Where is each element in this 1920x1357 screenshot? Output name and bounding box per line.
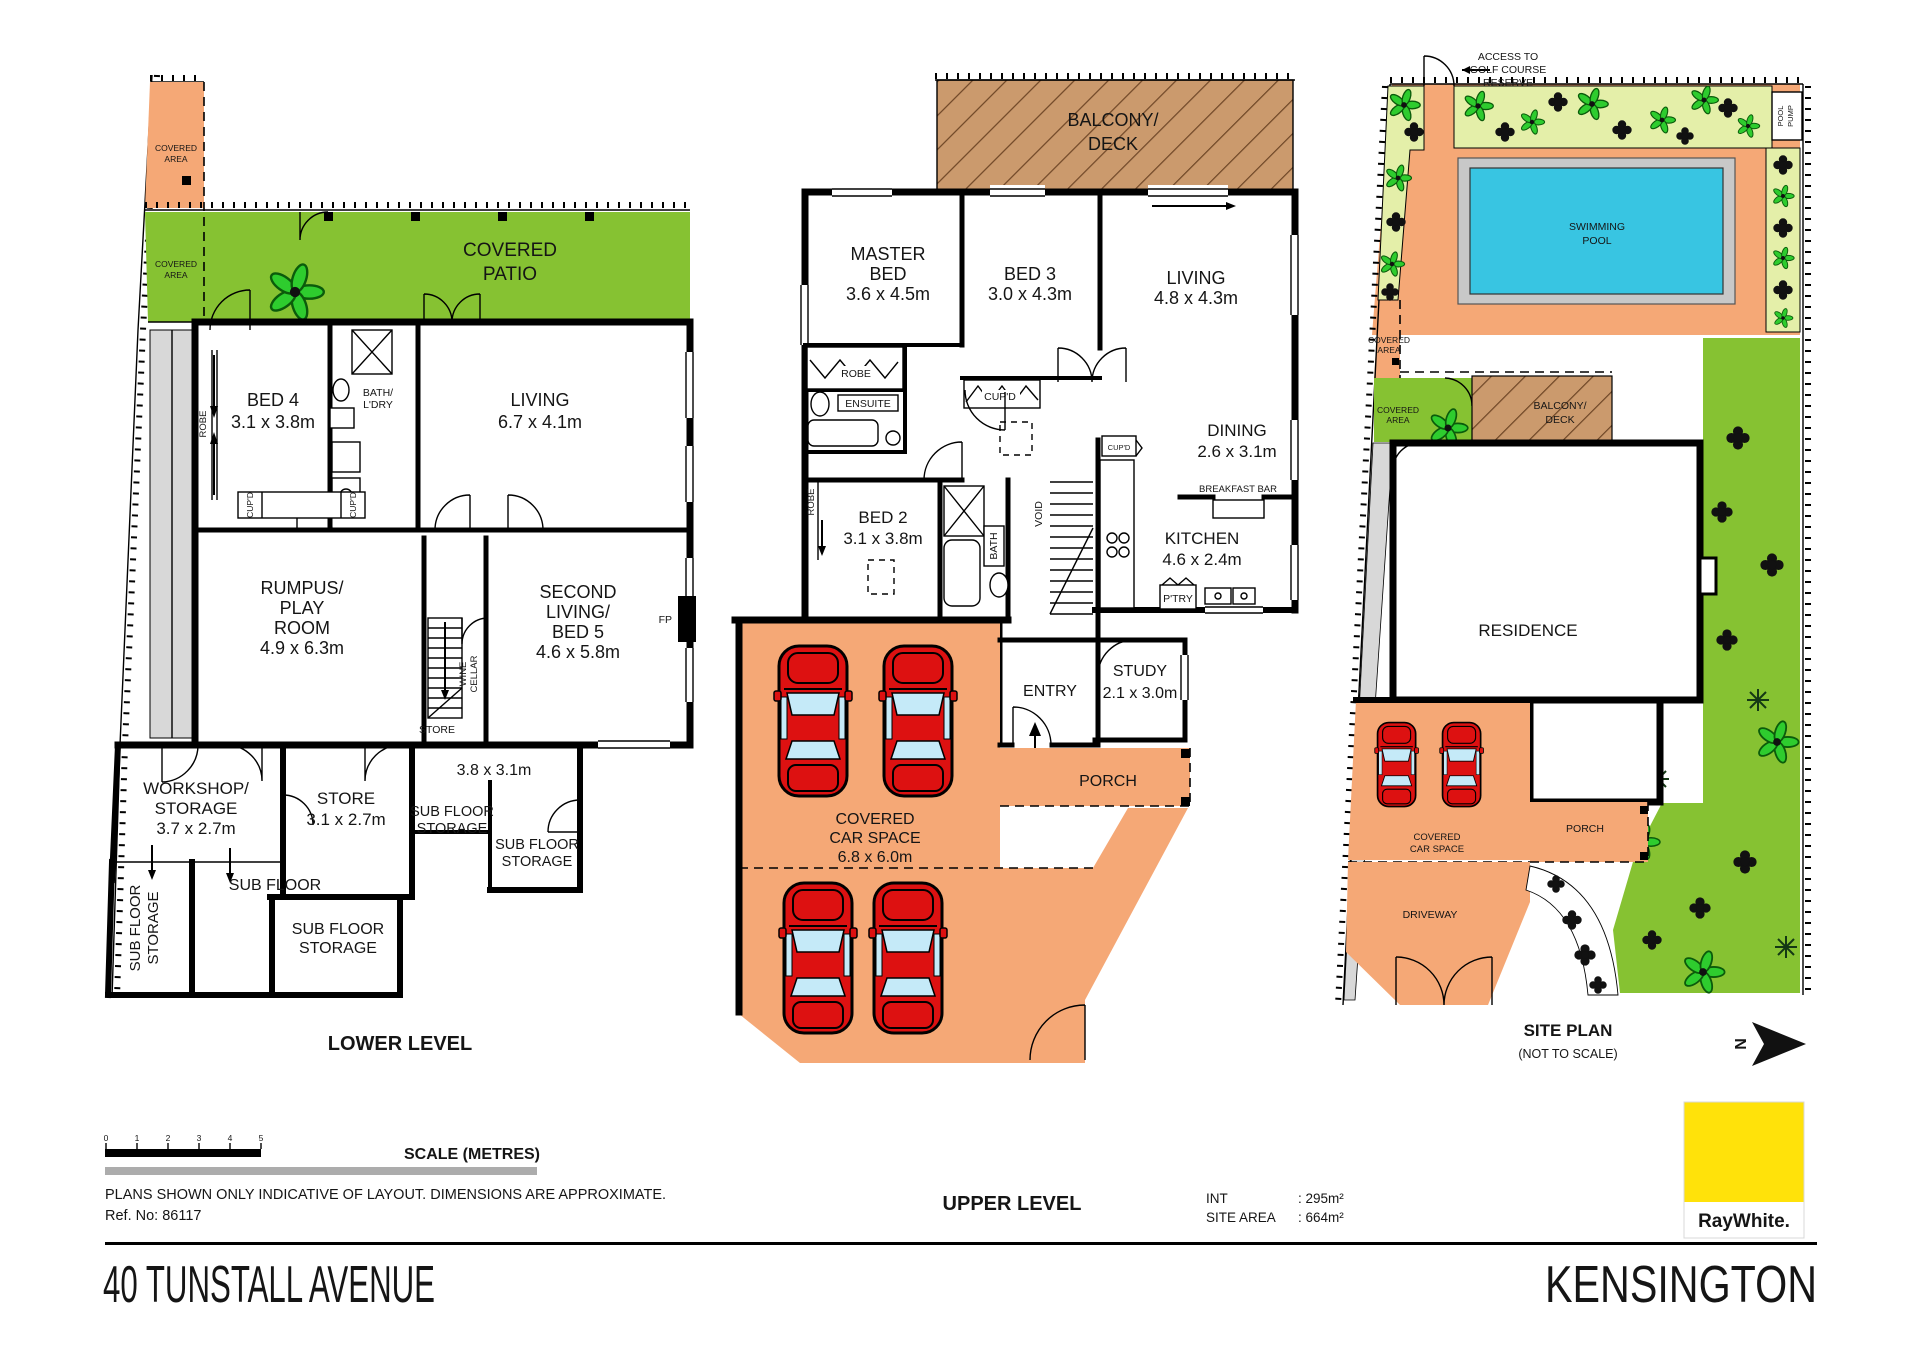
svg-text:RESERVE: RESERVE xyxy=(1483,77,1533,89)
upper-level-title: UPPER LEVEL xyxy=(943,1193,1082,1215)
label-residence: RESIDENCE xyxy=(1478,621,1577,640)
svg-text:6.8 x 6.0m: 6.8 x 6.0m xyxy=(838,849,913,866)
svg-text:AREA: AREA xyxy=(1377,345,1400,355)
svg-text:PUMP: PUMP xyxy=(1786,105,1795,127)
svg-text:CAR SPACE: CAR SPACE xyxy=(1410,844,1464,855)
svg-text:3.1 x 3.8m: 3.1 x 3.8m xyxy=(231,412,315,432)
label-pool-pump: POOL xyxy=(1776,106,1785,127)
svg-text:3.6 x 4.5m: 3.6 x 4.5m xyxy=(846,284,930,304)
int-value: : 295m² xyxy=(1298,1191,1344,1206)
label-bed2: BED 2 xyxy=(858,508,907,527)
fireplace-icon xyxy=(678,596,696,642)
svg-text:BED 5: BED 5 xyxy=(552,622,604,642)
label-void: VOID xyxy=(1033,501,1045,527)
label-covered-area: COVERED xyxy=(155,143,197,153)
lower-level-title: LOWER LEVEL xyxy=(328,1033,472,1055)
label-site-porch: PORCH xyxy=(1566,823,1604,835)
stairs-icon xyxy=(1050,482,1093,614)
label-porch: PORCH xyxy=(1079,773,1137,790)
svg-text:AREA: AREA xyxy=(164,154,187,164)
svg-text:3.1 x 3.8m: 3.1 x 3.8m xyxy=(843,529,922,548)
suburb: KENSINGTON xyxy=(1545,1256,1817,1314)
label-subfloor-storage: SUB FLOOR xyxy=(410,804,494,820)
svg-text:L'DRY: L'DRY xyxy=(363,399,393,411)
label-bath-ldry: BATH/ xyxy=(363,387,393,399)
label-cupd: CUP'D xyxy=(245,492,255,518)
label-workshop: WORKSHOP/ xyxy=(143,779,249,798)
svg-text:GOLF COURSE: GOLF COURSE xyxy=(1470,64,1546,76)
svg-text:STORAGE: STORAGE xyxy=(299,940,377,957)
label-bath: BATH xyxy=(988,532,1000,559)
lower-level-plan: COVERED AREA COVERED AREA COVERED PATIO … xyxy=(108,75,697,1055)
label-site-balcony: BALCONY/ xyxy=(1533,400,1586,412)
svg-text:DECK: DECK xyxy=(1088,134,1138,154)
label-site-covered-area-2: COVERED xyxy=(1377,405,1419,415)
address: 40 TUNSTALL AVENUE xyxy=(103,1256,435,1314)
swimming-pool: SWIMMING POOL xyxy=(1458,158,1735,304)
label-subfloor-storage: SUB FLOOR xyxy=(127,884,144,971)
svg-text:PATIO: PATIO xyxy=(483,264,537,285)
site-driveway xyxy=(1346,862,1530,1005)
svg-text:5: 5 xyxy=(259,1133,264,1143)
svg-text:2: 2 xyxy=(166,1133,171,1143)
label-ptry: P'TRY xyxy=(1163,593,1193,605)
svg-text:STORAGE: STORAGE xyxy=(145,891,162,964)
svg-text:CAR SPACE: CAR SPACE xyxy=(829,830,920,847)
svg-text:4.9 x 6.3m: 4.9 x 6.3m xyxy=(260,638,344,658)
label-site-car-space: COVERED xyxy=(1414,832,1461,843)
label-master-bed: MASTER xyxy=(850,244,925,264)
svg-text:1: 1 xyxy=(135,1133,140,1143)
svg-text:4.8 x 4.3m: 4.8 x 4.3m xyxy=(1154,288,1238,308)
label-cupd-kitchen: CUP'D xyxy=(1108,443,1131,452)
label-subfloor-storage: SUB FLOOR xyxy=(495,837,579,853)
car-icon xyxy=(774,646,852,796)
svg-text:3.0 x 4.3m: 3.0 x 4.3m xyxy=(988,284,1072,304)
svg-text:POOL: POOL xyxy=(1582,235,1611,247)
svg-text:4: 4 xyxy=(228,1133,233,1143)
garden-path xyxy=(1526,866,1618,995)
label-robe-bed2: ROBE xyxy=(806,489,817,516)
car-icon xyxy=(869,883,947,1033)
label-rumpus: RUMPUS/ xyxy=(260,578,343,598)
site-area-label: SITE AREA xyxy=(1206,1210,1276,1225)
svg-text:ROOM: ROOM xyxy=(274,618,330,638)
label-robe: ROBE xyxy=(198,411,209,438)
label-robe-master: ROBE xyxy=(841,368,871,380)
svg-text:CELLAR: CELLAR xyxy=(469,655,480,692)
site-plan-subtitle: (NOT TO SCALE) xyxy=(1518,1047,1617,1061)
car-icon xyxy=(1440,723,1484,807)
label-breakfast-bar: BREAKFAST BAR xyxy=(1199,484,1277,495)
label-living-upper: LIVING xyxy=(1166,268,1225,288)
site-plan-title: SITE PLAN xyxy=(1524,1021,1613,1040)
floorplan-sheet: COVERED AREA COVERED AREA COVERED PATIO … xyxy=(0,0,1920,1357)
divider-bar xyxy=(105,1167,537,1175)
label-site-covered-area: COVERED xyxy=(1368,335,1410,345)
svg-text:STORAGE: STORAGE xyxy=(155,799,238,818)
upper-level-plan: BALCONY/ DECK ROBE MASTER BED 3.6 x 4.5m… xyxy=(735,76,1302,1215)
label-store: STORE xyxy=(317,789,375,808)
svg-text:AREA: AREA xyxy=(1386,415,1409,425)
label-living: LIVING xyxy=(510,390,569,410)
label-access: ACCESS TO xyxy=(1478,51,1538,63)
label-kitchen: KITCHEN xyxy=(1165,529,1240,548)
svg-text:6.7 x 4.1m: 6.7 x 4.1m xyxy=(498,412,582,432)
lower-covered-patio xyxy=(145,212,690,322)
label-subfloor-storage: SUB FLOOR xyxy=(292,921,384,938)
scale-bar: 0 1 2 3 4 5 xyxy=(104,1133,264,1157)
svg-text:AREA: AREA xyxy=(164,270,187,280)
label-wine-cellar: WINE xyxy=(458,662,469,687)
scale-title: SCALE (METRES) xyxy=(404,1146,540,1163)
label-second-living: SECOND xyxy=(539,582,616,602)
label-entry: ENTRY xyxy=(1023,683,1077,700)
svg-text:N: N xyxy=(1733,1038,1750,1050)
label-fp: FP xyxy=(659,614,672,626)
disclaimer: PLANS SHOWN ONLY INDICATIVE OF LAYOUT. D… xyxy=(105,1187,666,1203)
site-plan: ACCESS TO GOLF COURSE RESERVE POOL PUMP … xyxy=(1338,51,1808,1066)
label-bed4: BED 4 xyxy=(247,390,299,410)
north-arrow-icon: N xyxy=(1733,1022,1806,1066)
svg-text:0: 0 xyxy=(104,1133,109,1143)
svg-text:BED: BED xyxy=(869,264,906,284)
svg-text:PLAY: PLAY xyxy=(280,598,325,618)
svg-text:3.1 x 2.7m: 3.1 x 2.7m xyxy=(306,810,385,829)
label-dim38: 3.8 x 3.1m xyxy=(457,762,532,779)
svg-text:SWIMMING: SWIMMING xyxy=(1569,221,1625,233)
residence xyxy=(1393,443,1700,700)
label-cupd-bed3: CUP'D xyxy=(984,391,1016,403)
car-icon xyxy=(1375,723,1419,807)
svg-text:2.6 x 3.1m: 2.6 x 3.1m xyxy=(1197,442,1276,461)
label-covered-area-2: COVERED xyxy=(155,259,197,269)
stairs-icon xyxy=(428,618,462,718)
label-driveway: DRIVEWAY xyxy=(1403,909,1458,921)
svg-text:4.6 x 2.4m: 4.6 x 2.4m xyxy=(1162,550,1241,569)
svg-text:4.6 x 5.8m: 4.6 x 5.8m xyxy=(536,642,620,662)
int-label: INT xyxy=(1206,1191,1228,1206)
ref-number: Ref. No: 86117 xyxy=(105,1208,201,1224)
svg-text:2.1 x 3.0m: 2.1 x 3.0m xyxy=(1103,685,1178,702)
svg-text:DECK: DECK xyxy=(1545,414,1574,426)
label-dining: DINING xyxy=(1207,421,1267,440)
label-store-small: STORE xyxy=(419,724,455,736)
label-car-space: COVERED xyxy=(835,811,914,828)
label-bed3: BED 3 xyxy=(1004,264,1056,284)
footer-rule xyxy=(105,1242,1817,1245)
label-study: STUDY xyxy=(1113,663,1168,680)
label-covered-patio: COVERED xyxy=(463,240,557,261)
svg-text:RayWhite.: RayWhite. xyxy=(1698,1211,1790,1232)
svg-text:3: 3 xyxy=(197,1133,202,1143)
site-area-value: : 664m² xyxy=(1298,1210,1344,1225)
svg-text:LIVING/: LIVING/ xyxy=(546,602,610,622)
raywhite-logo: RayWhite. xyxy=(1684,1102,1804,1238)
label-subfloor: SUB FLOOR xyxy=(229,877,321,894)
floorplan-svg: COVERED AREA COVERED AREA COVERED PATIO … xyxy=(0,0,1920,1357)
svg-text:3.7 x 2.7m: 3.7 x 2.7m xyxy=(156,819,235,838)
label-ensuite: ENSUITE xyxy=(845,398,891,410)
svg-text:STORAGE: STORAGE xyxy=(417,821,488,837)
car-icon xyxy=(779,883,857,1033)
car-icon xyxy=(879,646,957,796)
svg-text:STORAGE: STORAGE xyxy=(502,854,573,870)
label-balcony: BALCONY/ xyxy=(1067,110,1158,130)
label-cupd: CUP'D xyxy=(348,492,358,518)
